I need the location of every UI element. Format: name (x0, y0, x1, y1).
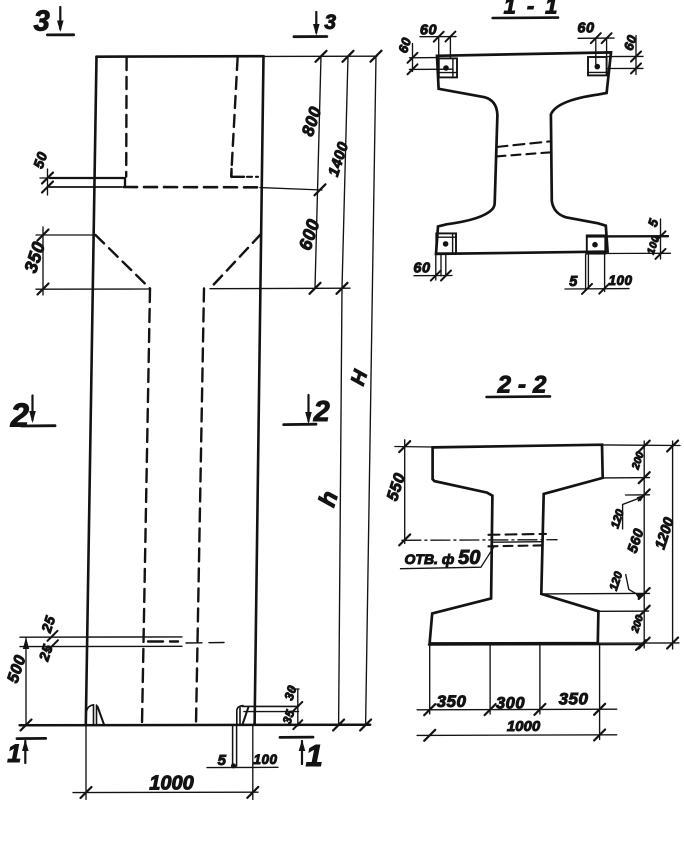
svg-text:350: 350 (437, 692, 467, 711)
svg-text:550: 550 (384, 471, 409, 503)
svg-text:H: H (347, 367, 373, 388)
svg-text:350: 350 (20, 239, 49, 275)
svg-text:1000: 1000 (149, 773, 194, 795)
svg-text:3: 3 (34, 6, 51, 38)
svg-text:60: 60 (413, 261, 430, 277)
svg-text:ОТВ. ф 50: ОТВ. ф 50 (405, 547, 481, 569)
svg-text:2-2: 2-2 (497, 372, 554, 399)
svg-text:3: 3 (324, 11, 336, 34)
svg-text:1000: 1000 (507, 718, 541, 735)
svg-text:600: 600 (295, 217, 324, 253)
svg-text:60: 60 (577, 21, 594, 37)
svg-text:30: 30 (282, 684, 300, 703)
svg-text:1400: 1400 (325, 140, 352, 179)
svg-text:1: 1 (7, 740, 21, 768)
svg-text:120: 120 (608, 570, 626, 593)
svg-text:300: 300 (496, 695, 525, 713)
svg-text:60: 60 (621, 33, 640, 53)
svg-text:5: 5 (569, 274, 578, 290)
svg-text:5: 5 (645, 216, 662, 228)
svg-text:100: 100 (608, 273, 632, 288)
svg-text:1-1: 1-1 (504, 0, 569, 19)
svg-text:1200: 1200 (653, 516, 678, 552)
svg-text:350: 350 (559, 690, 589, 709)
svg-text:1: 1 (306, 738, 324, 773)
svg-text:800: 800 (298, 104, 325, 138)
svg-text:2: 2 (10, 397, 30, 434)
svg-text:50: 50 (30, 150, 50, 171)
svg-text:100: 100 (253, 752, 277, 767)
svg-text:560: 560 (624, 526, 647, 555)
svg-text:60: 60 (395, 35, 414, 55)
svg-text:5: 5 (218, 752, 227, 769)
svg-text:120: 120 (609, 508, 627, 531)
svg-text:h: h (314, 487, 344, 510)
